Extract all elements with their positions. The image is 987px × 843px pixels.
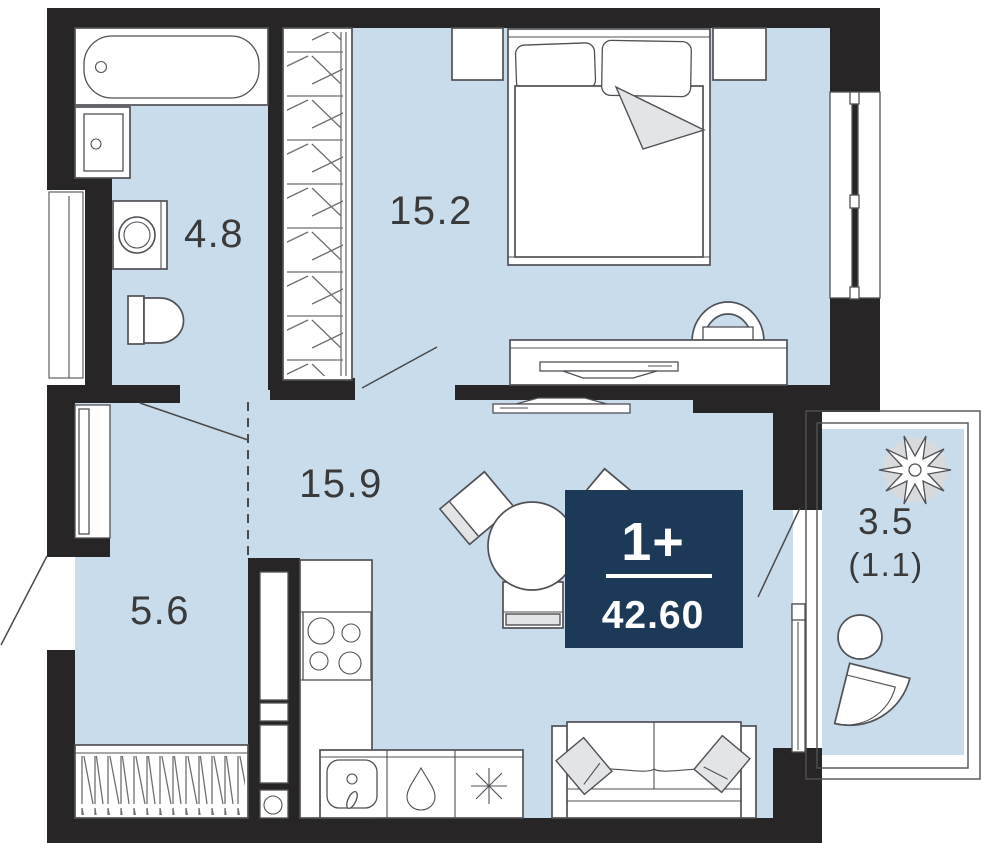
kitchen-bottom-row <box>320 750 523 818</box>
room-label-hallway: 5.6 <box>130 589 190 633</box>
nightstand-left <box>452 28 503 80</box>
unit-info-badge: 1+ 42.60 <box>565 490 743 648</box>
washing-machine <box>113 201 167 269</box>
dining-table <box>488 502 576 590</box>
double-bed <box>508 29 710 265</box>
ventilation-shaft <box>260 572 288 818</box>
wardrobe <box>283 28 352 380</box>
room-label-balcony: 3.5 <box>858 501 914 542</box>
room-label-balcony-reduced: (1.1) <box>848 546 923 583</box>
balcony-table <box>838 615 882 659</box>
bathroom-window <box>49 192 83 378</box>
hallway-wardrobe <box>75 745 248 818</box>
door-swing-entry <box>1 556 47 645</box>
badge-divider <box>606 574 712 578</box>
balcony-door-panel <box>792 604 805 752</box>
kitchen-sink <box>327 760 377 810</box>
toilet <box>128 296 184 344</box>
badge-rooms-count: 1+ <box>621 512 685 572</box>
bathroom-sink <box>75 107 130 178</box>
floor-plan-canvas: 4.8 15.2 15.9 5.6 3.5 (1.1) 1+ 42.60 <box>0 0 987 843</box>
nightstand-right <box>713 28 766 80</box>
entrance-door <box>75 405 110 538</box>
stove <box>303 612 371 680</box>
floor-plan-stage: 4.8 15.2 15.9 5.6 3.5 (1.1) 1+ 42.60 <box>0 0 987 843</box>
bathtub <box>75 28 268 105</box>
room-label-bedroom: 15.2 <box>389 189 473 233</box>
fridge-icon <box>471 768 507 804</box>
room-label-living: 15.9 <box>299 462 383 506</box>
sofa <box>552 722 756 818</box>
room-label-bathroom: 4.8 <box>184 212 244 256</box>
badge-area-value: 42.60 <box>602 594 705 637</box>
desk <box>510 340 787 385</box>
